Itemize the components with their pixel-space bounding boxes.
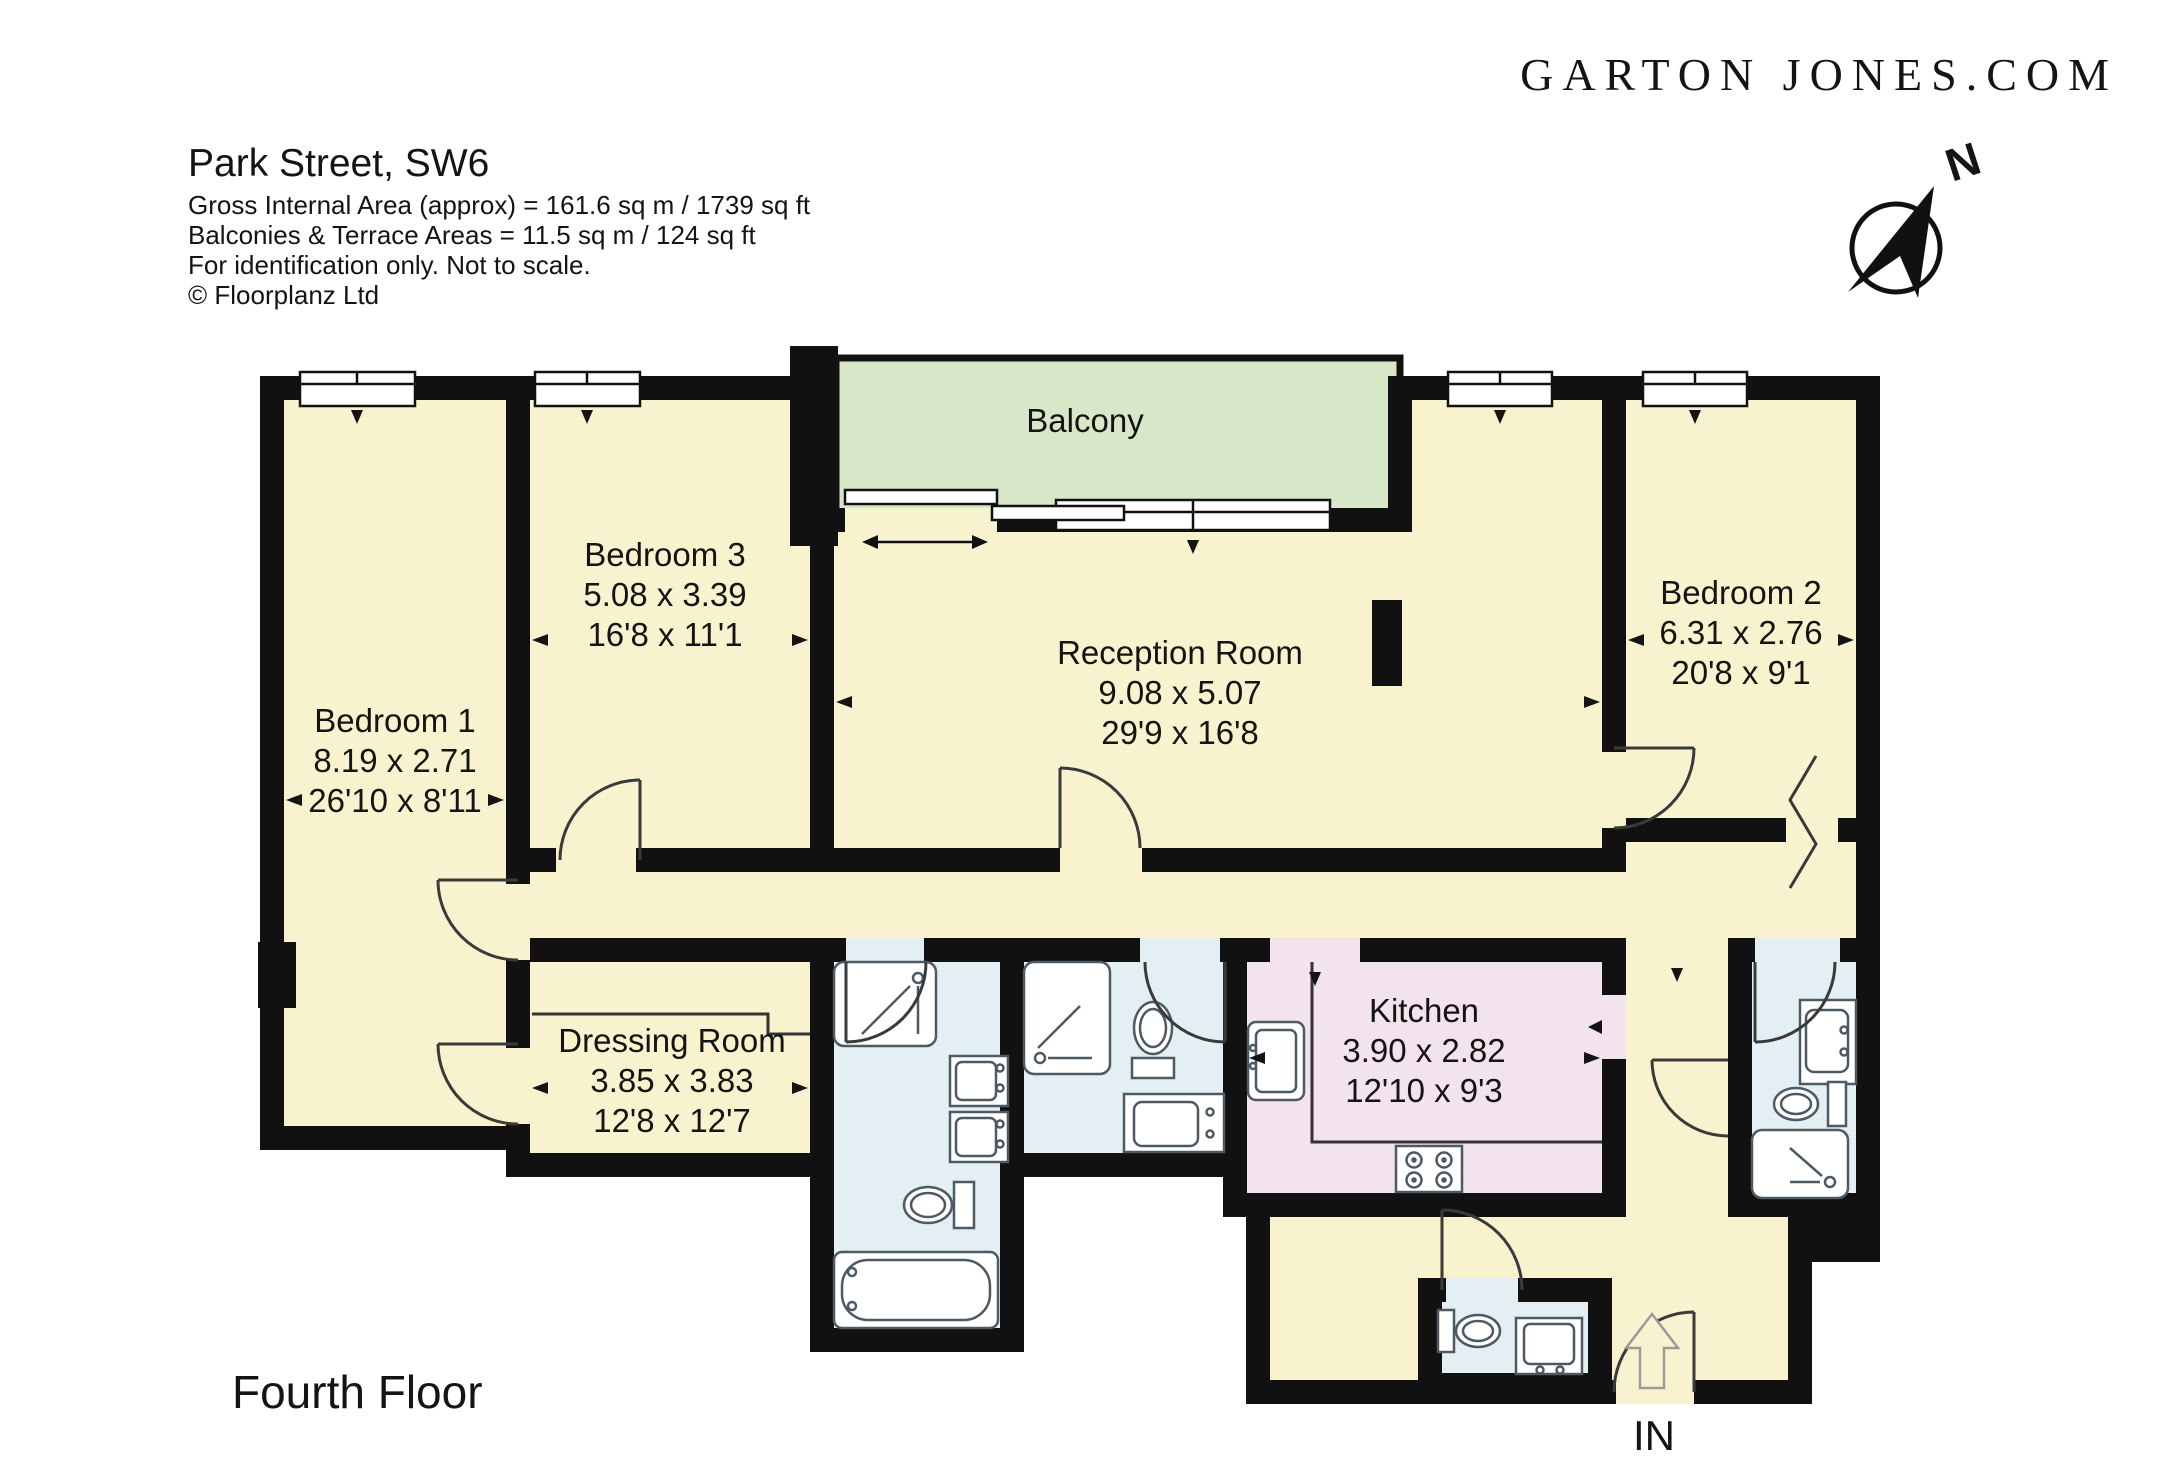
label-bedroom1-imperial: 26'10 x 8'11 [308,782,481,819]
label-dressing-metric: 3.85 x 3.83 [590,1062,753,1099]
disclaimer-line: For identification only. Not to scale. [188,250,591,280]
compass-north-label: N [1939,132,1987,192]
label-reception-imperial: 29'9 x 16'8 [1101,714,1259,751]
sink-icon [1800,1000,1856,1084]
label-bedroom2-name: Bedroom 2 [1660,574,1821,611]
label-dressing-imperial: 12'8 x 12'7 [593,1102,751,1139]
entrance-label: IN [1633,1412,1675,1459]
area-line-1: Gross Internal Area (approx) = 161.6 sq … [188,190,811,220]
label-reception-metric: 9.08 x 5.07 [1098,674,1261,711]
floorplan-page: Bedroom 1 8.19 x 2.71 26'10 x 8'11 Bedro… [0,0,2165,1463]
wall-pillar-reception [1372,600,1402,686]
wall-bottom-right-step [1788,1196,1880,1262]
compass-icon: N [1848,132,1987,298]
label-bedroom3-metric: 5.08 x 3.39 [583,576,746,613]
sink-icon [950,1056,1008,1106]
bath-icon [834,1252,998,1328]
label-bedroom2-metric: 6.31 x 2.76 [1659,614,1822,651]
label-bedroom1-name: Bedroom 1 [314,702,475,739]
label-bedroom2-imperial: 20'8 x 9'1 [1671,654,1810,691]
window-reception-ext [1448,372,1552,406]
label-bedroom3-imperial: 16'8 x 11'1 [587,616,742,653]
sink-icon [1516,1318,1582,1374]
area-line-2: Balconies & Terrace Areas = 11.5 sq m / … [188,220,757,250]
label-kitchen-name: Kitchen [1369,992,1479,1029]
label-kitchen-metric: 3.90 x 2.82 [1342,1032,1505,1069]
label-bedroom1-metric: 8.19 x 2.71 [313,742,476,779]
label-kitchen-imperial: 12'10 x 9'3 [1345,1072,1503,1109]
floorplan-drawing [258,346,1880,1404]
wall-balcony-left [790,346,838,546]
title-block: Park Street, SW6 Gross Internal Area (ap… [188,142,811,310]
floor-label: Fourth Floor [232,1366,483,1418]
label-dressing-name: Dressing Room [558,1022,785,1059]
label-reception-name: Reception Room [1057,634,1303,671]
hob-icon [1396,1146,1462,1192]
toilet-icon [1132,1002,1174,1078]
shower-icon [1752,1130,1848,1198]
kitchen-sink-icon [1248,1022,1304,1100]
sink-icon [1124,1094,1224,1152]
sink-icon [950,1112,1008,1162]
window-bedroom1 [300,372,415,406]
label-balcony: Balcony [1026,402,1144,439]
label-bedroom3-name: Bedroom 3 [584,536,745,573]
brand-logo: GARTON JONES.COM [1520,49,2118,100]
window-bedroom2 [1643,372,1747,406]
shower-icon [1024,962,1110,1074]
window-bedroom3 [535,372,640,406]
toilet-icon [904,1182,974,1228]
wall-bedroom1-niche [258,942,296,1008]
page-title: Park Street, SW6 [188,142,489,185]
copyright-line: © Floorplanz Ltd [188,280,379,310]
